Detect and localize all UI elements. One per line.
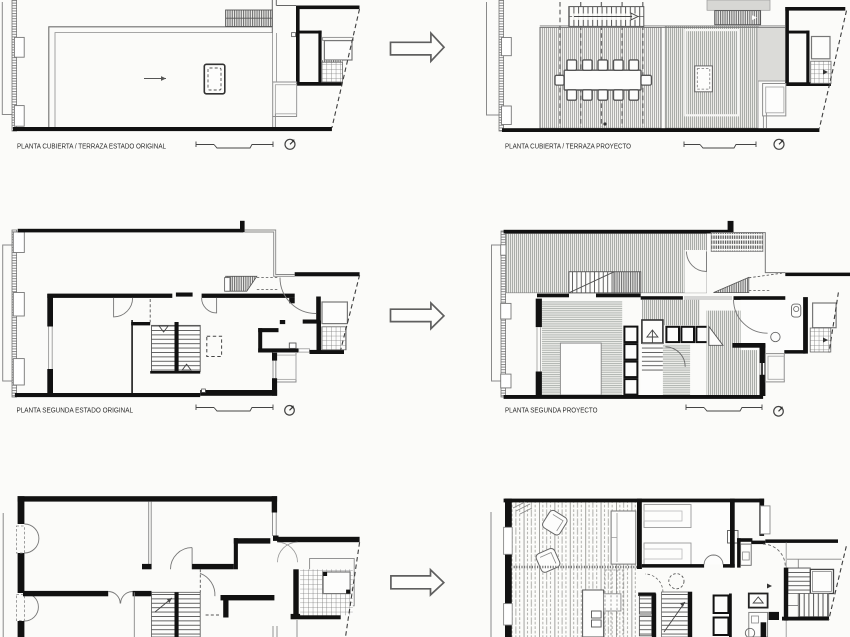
svg-text:PLANTA CUBIERTA / TERRAZA PROY: PLANTA CUBIERTA / TERRAZA PROYECTO <box>505 142 631 151</box>
svg-text:PLANTA CUBIERTA / TERRAZA ESTA: PLANTA CUBIERTA / TERRAZA ESTADO ORIGINA… <box>17 142 166 151</box>
svg-text:PLANTA SEGUNDA ESTADO ORIGINAL: PLANTA SEGUNDA ESTADO ORIGINAL <box>17 406 134 415</box>
svg-text:PLANTA SEGUNDA PROYECTO: PLANTA SEGUNDA PROYECTO <box>505 406 598 415</box>
